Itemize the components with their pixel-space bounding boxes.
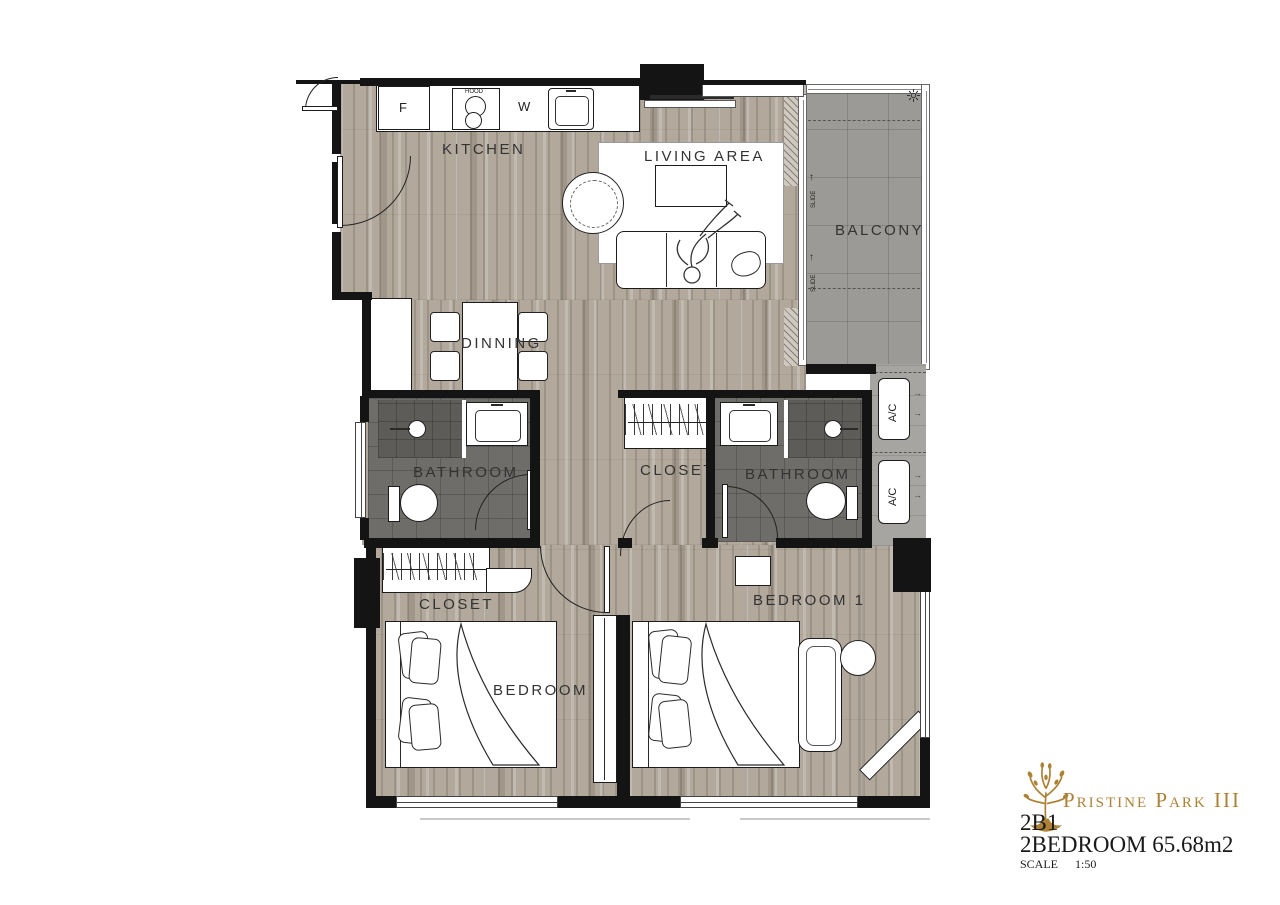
side-table-bedroom1 — [840, 640, 876, 676]
wall-segment — [618, 538, 632, 548]
fridge-label: F — [399, 100, 407, 115]
ac-top-label: A/C — [887, 404, 899, 422]
window — [355, 422, 366, 518]
structural-column — [893, 538, 931, 592]
slide-arrow-icon: ↑ — [809, 252, 814, 263]
washer-label: W — [518, 99, 530, 114]
bathroom-left-label: BATHROOM — [413, 464, 519, 481]
bed-blanket — [632, 621, 800, 768]
balcony-drain-icon — [906, 88, 921, 103]
wall-shelf — [702, 84, 804, 97]
scale-label: SCALE — [1020, 857, 1058, 872]
kitchen-label: KITCHEN — [442, 141, 525, 158]
toilet-right-tank — [846, 486, 858, 520]
ac-arrow-icon: → — [913, 490, 922, 500]
bench-inner — [806, 646, 836, 746]
wall-segment — [618, 390, 872, 398]
door-leaf — [337, 156, 343, 228]
ac-dashed-line — [870, 372, 926, 373]
hall-closet-rack — [624, 397, 714, 449]
bathroom-right-label: BATHROOM — [745, 466, 851, 483]
stove-burner — [465, 112, 482, 129]
tv-console — [644, 100, 736, 108]
sliding-door — [798, 94, 807, 366]
wall-segment — [360, 396, 369, 422]
wall-segment — [364, 538, 540, 548]
wall-segment — [776, 538, 872, 548]
slide-label-top: SLIDE — [811, 191, 817, 208]
dining-chair — [430, 351, 460, 381]
slide-label-bottom: SLIDE — [811, 275, 817, 292]
wall-segment — [362, 296, 371, 396]
wall-segment — [360, 78, 642, 86]
wall-segment — [806, 364, 876, 374]
scale-value: 1:50 — [1075, 857, 1096, 872]
bathroom-left-sink-basin — [475, 410, 521, 442]
toilet-left-tank — [388, 486, 400, 522]
shower-head — [408, 420, 426, 438]
window-sill — [420, 818, 690, 820]
dining-label: DINNING — [461, 335, 542, 352]
wall-segment — [617, 615, 630, 798]
bathroom-right-sink-basin — [729, 410, 771, 442]
hood-label: HOOD — [465, 89, 483, 95]
brand-name: Pristine Park III — [1063, 788, 1241, 813]
wall-segment — [706, 396, 715, 540]
slide-arrow-icon: ↑ — [809, 172, 814, 183]
shower-arm — [840, 428, 858, 430]
kitchen-faucet — [566, 90, 576, 92]
unit-description: 2BEDROOM 65.68m2 — [1020, 834, 1233, 856]
window — [396, 796, 558, 808]
hall-closet-label: CLOSET — [640, 462, 715, 479]
window — [680, 796, 858, 808]
balcony-dashed-line — [808, 120, 920, 121]
shower-partition — [784, 400, 788, 458]
shower-arm — [390, 428, 410, 430]
dining-chair — [430, 312, 460, 342]
bedroom2-closet-rack — [382, 547, 490, 593]
door-leaf — [722, 484, 728, 538]
window — [920, 588, 930, 738]
wall-segment — [862, 396, 872, 540]
curtain-hatch — [784, 94, 798, 186]
living-area-label: LIVING AREA — [644, 148, 765, 165]
dining-chair — [518, 351, 548, 381]
bathroom-left-faucet — [491, 404, 503, 406]
person-figure — [630, 180, 770, 300]
nightstand-bedroom1 — [735, 556, 771, 586]
toilet-left-bowl — [400, 484, 438, 522]
wardrobe-line — [604, 618, 605, 780]
ac-bottom-label: A/C — [887, 488, 899, 506]
floor-plan-page: BALCONY ↑ SLIDE ↑ SLIDE F HOOD W KITCHEN — [0, 0, 1280, 905]
toilet-right-bowl — [806, 482, 846, 520]
bathroom-right-faucet — [743, 404, 755, 406]
kitchen-sink-basin — [555, 96, 589, 126]
door-leaf — [604, 546, 610, 613]
ac-arrow-icon: → — [913, 388, 922, 398]
ac-arrow-icon: → — [913, 470, 922, 480]
unit-code: 2B1 — [1020, 812, 1058, 834]
ac-dashed-line — [870, 452, 926, 453]
ac-arrow-icon: → — [913, 408, 922, 418]
dining-cabinet — [370, 298, 412, 394]
bedroom1-label: BEDROOM 1 — [753, 592, 866, 609]
wall-segment — [702, 538, 718, 548]
wall-segment — [530, 390, 540, 548]
wall-segment — [364, 390, 540, 398]
bedroom2-closet-label: CLOSET — [419, 596, 494, 613]
round-table-inner — [570, 180, 618, 228]
entry-door-leaf — [302, 106, 338, 111]
wall-segment — [702, 80, 806, 85]
window-sill — [740, 818, 930, 820]
balcony-dashed-line — [808, 288, 920, 289]
wall-segment — [332, 232, 341, 296]
wall-segment — [360, 518, 369, 540]
balcony-label: BALCONY — [835, 222, 924, 239]
structural-column — [354, 558, 380, 628]
wardrobe-bedroom2 — [593, 615, 617, 783]
curtain-hatch — [784, 308, 798, 366]
bedroom2-label: BEDROOM 2 — [493, 682, 606, 699]
